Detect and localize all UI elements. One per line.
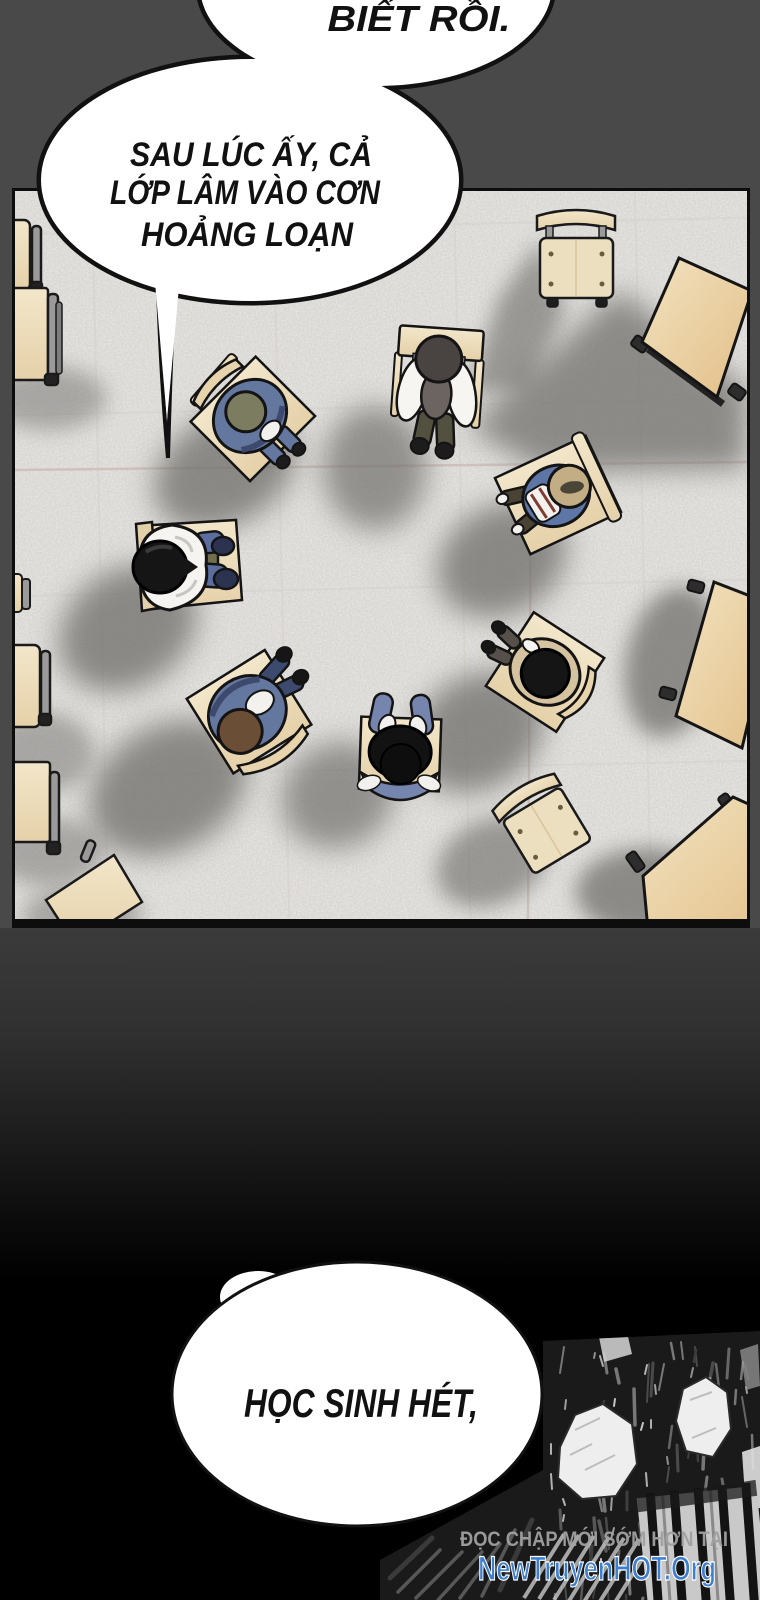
svg-text:LỚP LÂM VÀO CƠN: LỚP LÂM VÀO CƠN — [110, 174, 381, 212]
svg-text:HOẢNG LOẠN: HOẢNG LOẠN — [141, 216, 354, 254]
svg-text:BIẾT RỒI.: BIẾT RỒI. — [328, 0, 511, 39]
svg-text:SAU LÚC ẤY, CẢ: SAU LÚC ẤY, CẢ — [130, 136, 372, 174]
svg-text:HỌC SINH HÉT,: HỌC SINH HÉT, — [244, 1381, 478, 1426]
svg-text:ĐỌC CHẬP MỚI SỚM HƠN TẠI: ĐỌC CHẬP MỚI SỚM HƠN TẠI — [460, 1527, 728, 1551]
svg-text:NewTruyenHOT.Org: NewTruyenHOT.Org — [478, 1550, 716, 1588]
